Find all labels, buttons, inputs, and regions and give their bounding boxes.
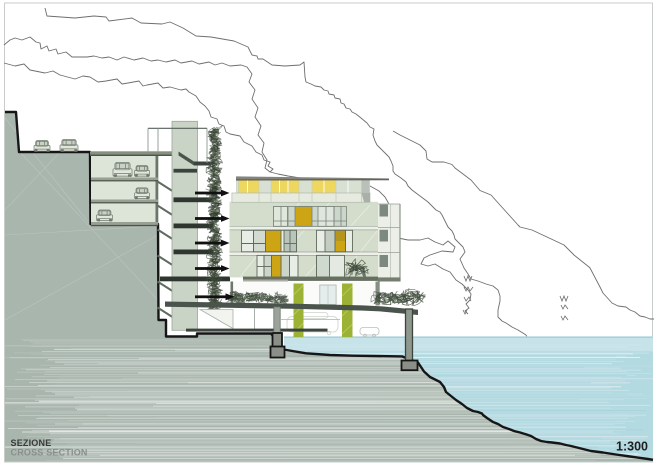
svg-text:CROSS SECTION: CROSS SECTION [11,447,88,457]
svg-text:SEZIONE: SEZIONE [11,438,52,448]
svg-text:1:300: 1:300 [616,440,648,454]
